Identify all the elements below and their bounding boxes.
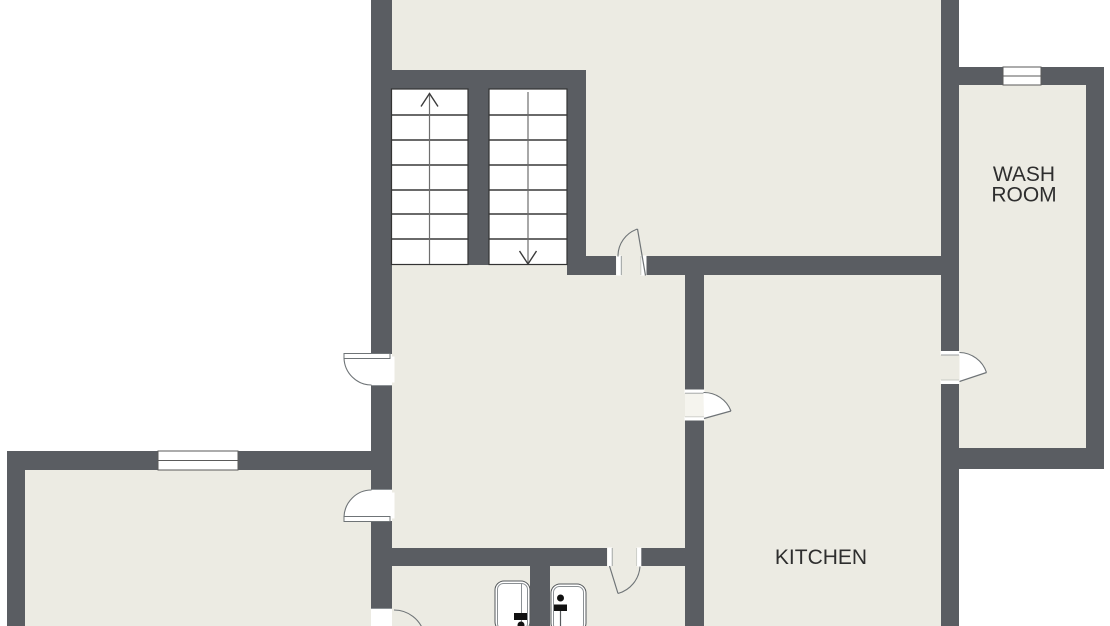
- svg-text:KITCHEN: KITCHEN: [775, 546, 867, 569]
- svg-text:ROOM: ROOM: [991, 184, 1056, 207]
